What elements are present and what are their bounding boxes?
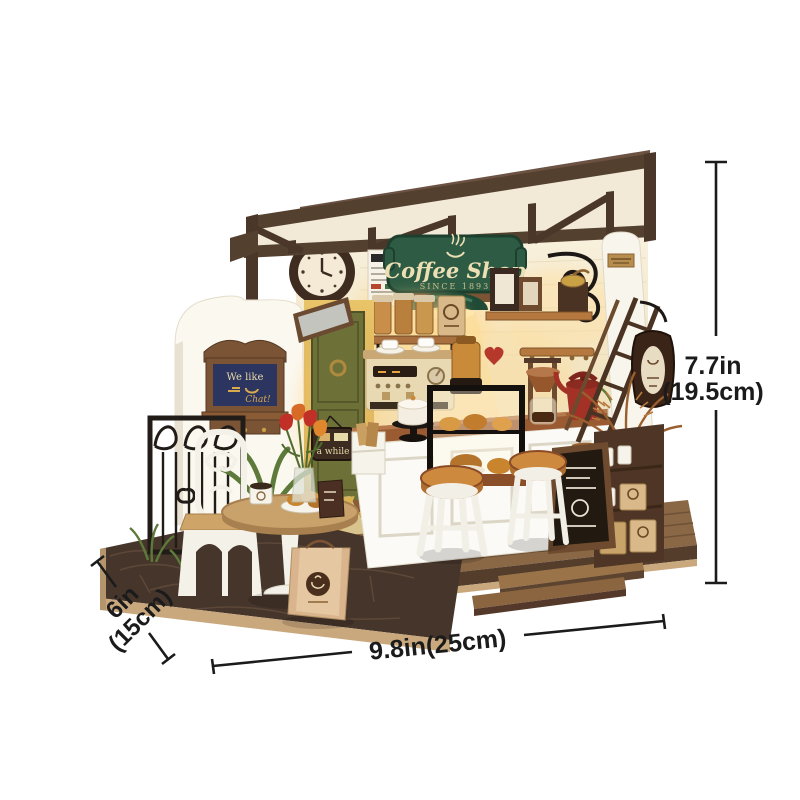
pillar-plaque [608, 254, 634, 267]
height-label-cm: (19.5cm) [662, 378, 763, 406]
product-photo: Coffee Shop SINCE 1893 [0, 0, 800, 800]
coffee-jars [372, 293, 435, 334]
notice-board-line1: We like [227, 372, 264, 383]
door-sign-text: a while [317, 447, 350, 457]
jar-shelf [363, 293, 467, 352]
decor-shelf [485, 268, 595, 365]
scene: Coffee Shop SINCE 1893 [0, 0, 800, 800]
mini-chalkboard [318, 480, 344, 518]
height-label-in: 7.7in [685, 352, 742, 380]
coffee-mug [250, 483, 272, 505]
notice-board-line2: Chat! [245, 395, 271, 405]
pour-over-station [524, 358, 561, 424]
sign-subtitle: SINCE 1893 [420, 282, 491, 291]
coffee-bean-bag [438, 296, 465, 336]
